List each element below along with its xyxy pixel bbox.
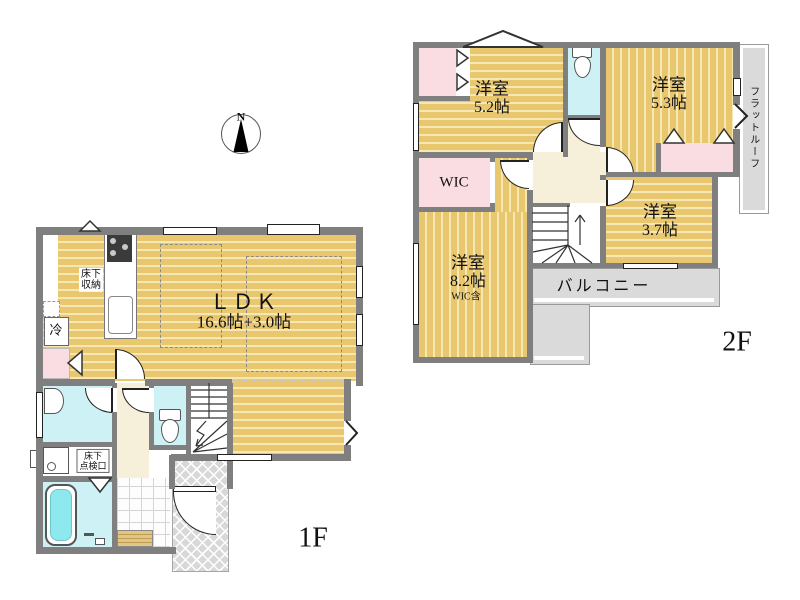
wall bbox=[566, 115, 602, 118]
casement-window-gap bbox=[733, 105, 740, 129]
balcony-inner-edge bbox=[534, 298, 714, 302]
wall bbox=[413, 357, 533, 363]
underfloor-inspection-label: 床下 点検口 bbox=[76, 449, 109, 473]
room-label-3-7: 洋室 bbox=[643, 202, 677, 221]
entrance-step bbox=[117, 530, 153, 547]
room-label-8-2-note: WIC含 bbox=[451, 291, 480, 302]
hall-2f bbox=[533, 152, 606, 203]
wall bbox=[149, 445, 191, 450]
wall bbox=[563, 42, 568, 157]
room-label-8-2: 洋室 bbox=[451, 253, 485, 272]
kitchen-dashed-space bbox=[43, 301, 60, 317]
window bbox=[356, 266, 363, 298]
stairs-2f bbox=[532, 205, 600, 263]
wall bbox=[169, 455, 175, 489]
room-label-5-2-size: 5.2帖 bbox=[474, 99, 510, 117]
room-label-5-3: 洋室 bbox=[652, 75, 686, 94]
wall bbox=[532, 203, 570, 207]
balcony-inner-edge bbox=[534, 356, 584, 360]
wall bbox=[532, 263, 606, 268]
ldk-name: ＬＤＫ bbox=[210, 290, 279, 314]
wall bbox=[413, 152, 533, 158]
wall bbox=[490, 158, 495, 162]
room-label-ldk: ＬＤＫ bbox=[210, 291, 279, 315]
wall bbox=[600, 206, 606, 268]
bath-stool-icon bbox=[95, 538, 105, 545]
wall bbox=[36, 227, 43, 554]
room-label-5-2: 洋室 bbox=[475, 79, 509, 98]
floor1-title: 1F bbox=[298, 522, 328, 553]
bath-faucet-icon bbox=[84, 533, 94, 536]
shoe-cabinet bbox=[42, 348, 70, 379]
wall bbox=[112, 482, 117, 554]
room-label-5-3-size: 5.3帖 bbox=[651, 95, 687, 113]
stove-icon bbox=[107, 235, 132, 262]
ldk-open-boundary-dashed bbox=[232, 379, 344, 381]
window bbox=[217, 454, 272, 461]
room-label-3-7-size: 3.7帖 bbox=[642, 222, 678, 240]
bay-window bbox=[267, 224, 320, 235]
wall bbox=[356, 227, 363, 386]
window bbox=[163, 227, 217, 235]
wall bbox=[272, 454, 351, 461]
wall bbox=[42, 442, 112, 447]
compass-north-label: N bbox=[237, 110, 246, 123]
floor2-title: 2F bbox=[722, 326, 752, 357]
balcony-label: バルコニー bbox=[557, 278, 652, 296]
wic-label: WIC bbox=[439, 175, 468, 192]
wall bbox=[36, 476, 117, 482]
wall bbox=[36, 547, 176, 554]
window bbox=[36, 392, 43, 438]
room-ldk-annex bbox=[232, 381, 344, 454]
wall bbox=[112, 412, 117, 478]
bathtub-water bbox=[50, 489, 72, 541]
wall bbox=[656, 143, 661, 177]
window bbox=[733, 78, 741, 96]
fridge-label: 冷 bbox=[49, 324, 62, 339]
wall bbox=[227, 383, 233, 489]
wall bbox=[419, 96, 470, 101]
underfloor-storage-label: 床下 収納 bbox=[79, 268, 103, 292]
window bbox=[356, 314, 363, 346]
wall bbox=[413, 42, 740, 48]
wall bbox=[527, 158, 533, 160]
closet-5-2 bbox=[419, 48, 456, 96]
ldk-size: 16.6帖+3.0帖 bbox=[197, 312, 292, 331]
room-label-ldk-size: 16.6帖+3.0帖 bbox=[197, 312, 292, 331]
wall bbox=[600, 42, 606, 147]
stairs-1f bbox=[191, 383, 227, 455]
closet-5-3 bbox=[661, 143, 733, 172]
casement-window-gap bbox=[344, 421, 351, 445]
kitchen-back-counter bbox=[43, 235, 58, 308]
window bbox=[413, 243, 419, 325]
wall bbox=[36, 379, 115, 386]
washing-machine-drain-icon bbox=[47, 462, 56, 471]
window bbox=[623, 263, 678, 269]
kitchen-sink bbox=[108, 296, 133, 334]
flat-roof-label: フラットルーフ bbox=[747, 86, 758, 170]
wall bbox=[344, 379, 351, 461]
wall bbox=[606, 263, 623, 268]
wall bbox=[149, 383, 154, 388]
wall bbox=[413, 207, 495, 212]
washing-machine-icon bbox=[43, 447, 69, 474]
wall bbox=[712, 177, 718, 268]
floor-plan-canvas: N bbox=[0, 0, 800, 600]
wall bbox=[527, 190, 533, 363]
wall bbox=[171, 454, 217, 461]
washbasin-icon bbox=[44, 388, 64, 414]
wall bbox=[606, 172, 740, 177]
window bbox=[413, 103, 419, 151]
room-label-8-2-size: 8.2帖 bbox=[450, 273, 486, 291]
closet-5-2-door bbox=[456, 48, 470, 96]
wall bbox=[112, 383, 117, 388]
